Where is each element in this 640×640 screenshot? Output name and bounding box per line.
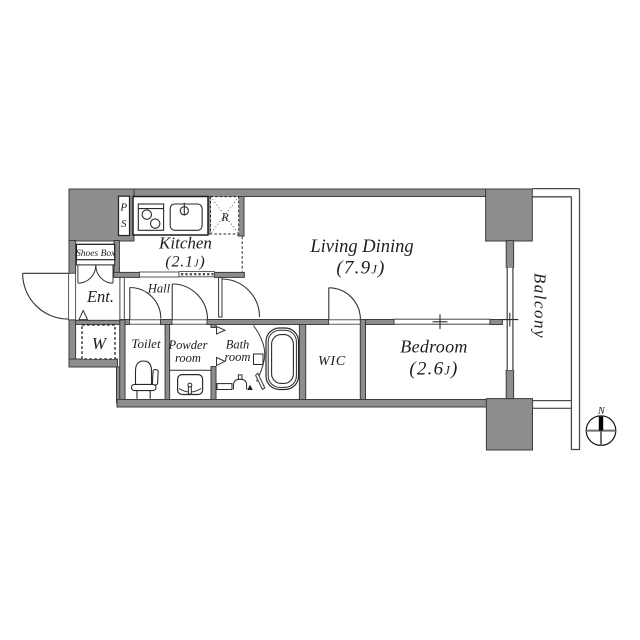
svg-text:W: W [92, 334, 108, 353]
svg-text:Bedroom: Bedroom [400, 337, 467, 357]
svg-text:Balcony: Balcony [531, 273, 550, 339]
svg-text:WIC: WIC [318, 354, 346, 369]
svg-text:Ent.: Ent. [86, 287, 114, 306]
svg-text:(7.9J): (7.9J) [336, 258, 385, 279]
svg-text:room: room [175, 351, 201, 365]
svg-text:S: S [121, 218, 127, 230]
svg-text:N: N [597, 406, 606, 417]
svg-text:Living Dining: Living Dining [309, 237, 413, 257]
svg-text:P: P [119, 202, 127, 214]
svg-text:room: room [225, 350, 251, 364]
svg-text:(2.6J): (2.6J) [409, 359, 458, 380]
svg-text:Kitchen: Kitchen [158, 234, 212, 253]
svg-text:Shoes Box: Shoes Box [76, 249, 116, 259]
svg-text:Toilet: Toilet [131, 336, 161, 351]
svg-text:Hall: Hall [147, 282, 171, 296]
svg-text:R: R [220, 210, 229, 224]
svg-text:(2.1J): (2.1J) [165, 254, 205, 271]
